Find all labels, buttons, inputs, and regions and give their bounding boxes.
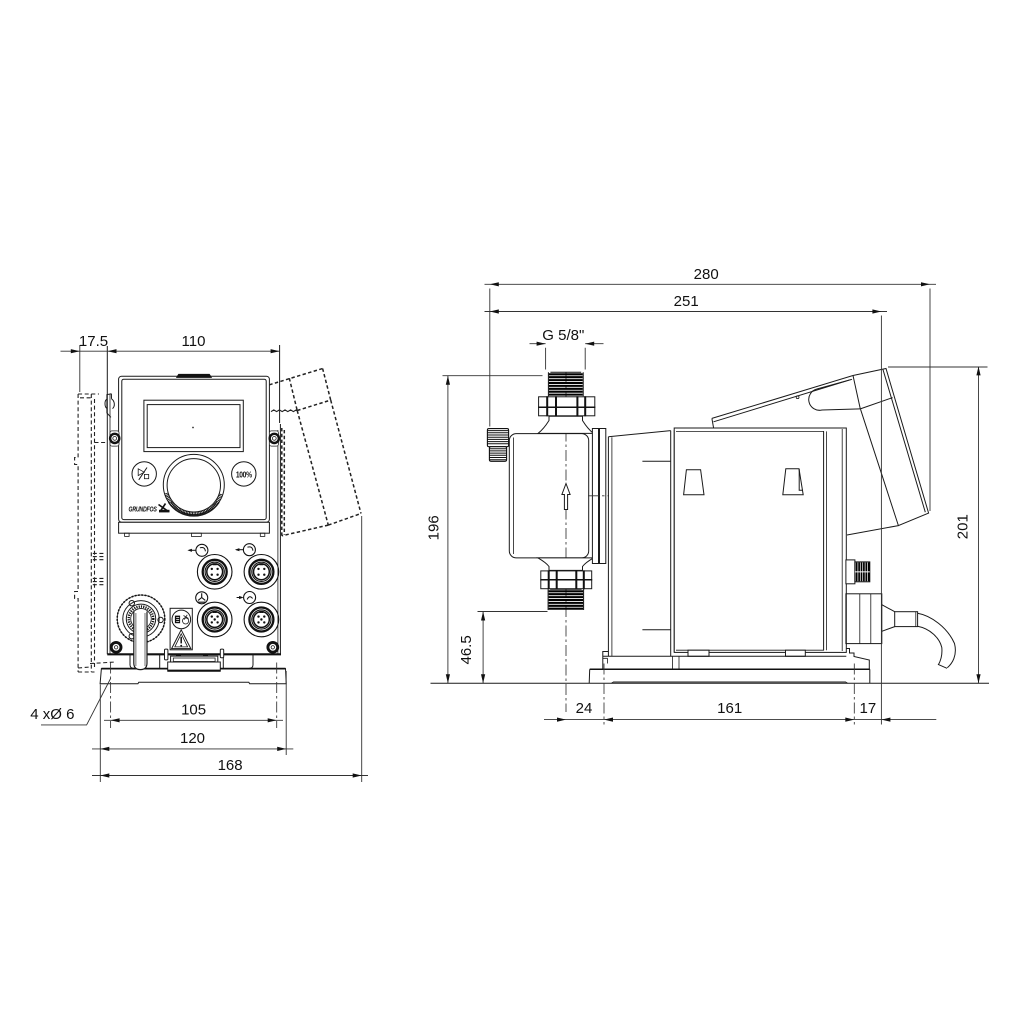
svg-text:24: 24 bbox=[576, 700, 593, 717]
svg-text:46.5: 46.5 bbox=[458, 635, 475, 664]
svg-text:168: 168 bbox=[218, 757, 243, 774]
svg-text:GRUNDFOS: GRUNDFOS bbox=[129, 506, 158, 514]
svg-text:100%: 100% bbox=[236, 469, 252, 479]
svg-text:120: 120 bbox=[180, 730, 205, 747]
svg-text:280: 280 bbox=[694, 266, 719, 283]
svg-text:17: 17 bbox=[860, 700, 877, 717]
svg-text:17.5: 17.5 bbox=[79, 333, 108, 350]
svg-text:161: 161 bbox=[717, 700, 742, 717]
svg-text:201: 201 bbox=[954, 514, 971, 539]
svg-text:196: 196 bbox=[426, 515, 443, 540]
svg-text:251: 251 bbox=[674, 293, 699, 310]
svg-text:105: 105 bbox=[181, 702, 206, 719]
svg-text:4 xØ 6: 4 xØ 6 bbox=[30, 706, 74, 723]
svg-text:G 5/8": G 5/8" bbox=[542, 327, 584, 344]
svg-text:110: 110 bbox=[182, 333, 206, 350]
